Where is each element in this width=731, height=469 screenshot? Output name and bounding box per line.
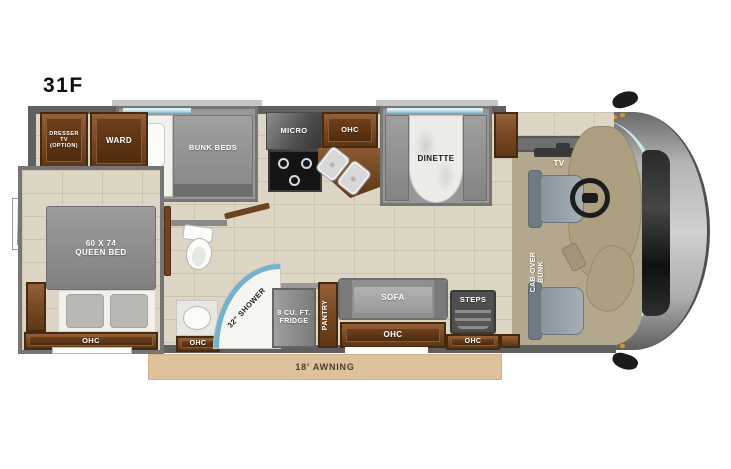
entry-door xyxy=(345,347,428,354)
sofa-ohc-label: OHC xyxy=(384,330,403,339)
fridge-label-2: FRIDGE xyxy=(280,318,309,326)
nightstand xyxy=(26,282,46,332)
queen-bed: 60 X 74 QUEEN BED xyxy=(46,206,156,290)
steps-treads xyxy=(455,310,491,330)
kitchen-ohc: OHC xyxy=(322,112,378,148)
mirror-icon xyxy=(610,350,639,372)
cabinet xyxy=(494,112,518,158)
marker-light-icon xyxy=(620,344,625,348)
cab-over-bunk-line2: BUNK xyxy=(538,261,545,283)
sofa: SOFA xyxy=(338,278,448,320)
steps-label: STEPS xyxy=(452,296,494,305)
cab-hood-window xyxy=(642,150,670,316)
dresser-label-2: TV (OPTION) xyxy=(47,137,81,150)
dinette-bench xyxy=(385,115,409,201)
plan-title: 31F xyxy=(43,74,84,98)
microwave: MICRO xyxy=(266,112,322,150)
micro-label: MICRO xyxy=(281,127,308,136)
marker-light-icon xyxy=(620,113,625,117)
rv-floorplan: 31F BUNK BEDS DRESSER TV (OPTION) W xyxy=(0,0,731,469)
window-icon xyxy=(387,108,483,114)
bed-ohc-label: OHC xyxy=(82,337,100,346)
awning: 18' AWNING xyxy=(148,354,502,380)
burner-icon xyxy=(278,158,289,169)
bath-ohc-label: OHC xyxy=(190,340,207,348)
dinette-bench xyxy=(463,115,487,201)
queen-bed-label-1: 60 X 74 xyxy=(86,239,116,248)
sofa-ohc: OHC xyxy=(340,322,446,348)
cabinet xyxy=(500,334,520,348)
bunk-beds-label: BUNK BEDS xyxy=(174,144,252,153)
fridge-label-1: 8 CU. FT. xyxy=(277,310,310,318)
cab-over-bunk-label: CAB-OVER BUNK xyxy=(530,227,550,317)
entry-steps: STEPS xyxy=(450,290,496,334)
window-icon xyxy=(52,347,132,354)
bunk-base xyxy=(174,184,252,196)
sliding-door xyxy=(164,206,171,276)
cab-over-bunk-line1: CAB-OVER xyxy=(530,252,537,293)
awning-label: 18' AWNING xyxy=(295,362,354,372)
dinette-slideout: DINETTE xyxy=(380,106,492,206)
wardrobe: WARD xyxy=(90,112,148,170)
pillow xyxy=(66,294,104,328)
pantry-label: PANTRY xyxy=(322,275,334,355)
dinette-label: DINETTE xyxy=(410,154,462,163)
mirror-icon xyxy=(610,88,639,110)
sofa-label: SOFA xyxy=(340,293,446,302)
kitchen-ohc-label: OHC xyxy=(341,126,359,135)
entry-ohc: OHC xyxy=(446,334,500,350)
pillow xyxy=(110,294,148,328)
bed-slideout: 60 X 74 QUEEN BED OHC xyxy=(18,166,164,354)
steering-hub xyxy=(582,193,598,203)
dinette-table: DINETTE xyxy=(409,115,463,203)
tv-stand xyxy=(556,143,570,149)
bunk-beds: BUNK BEDS xyxy=(173,115,253,197)
stove-icon xyxy=(268,150,322,192)
burner-icon xyxy=(289,175,300,186)
entry-ohc-label: OHC xyxy=(465,338,482,346)
fridge: 8 CU. FT. FRIDGE xyxy=(272,288,316,348)
dresser-cabinet: DRESSER TV (OPTION) xyxy=(40,112,88,168)
queen-bed-label-2: QUEEN BED xyxy=(75,248,126,257)
ward-label: WARD xyxy=(106,136,132,145)
sink-icon xyxy=(183,306,211,330)
burner-icon xyxy=(301,158,312,169)
